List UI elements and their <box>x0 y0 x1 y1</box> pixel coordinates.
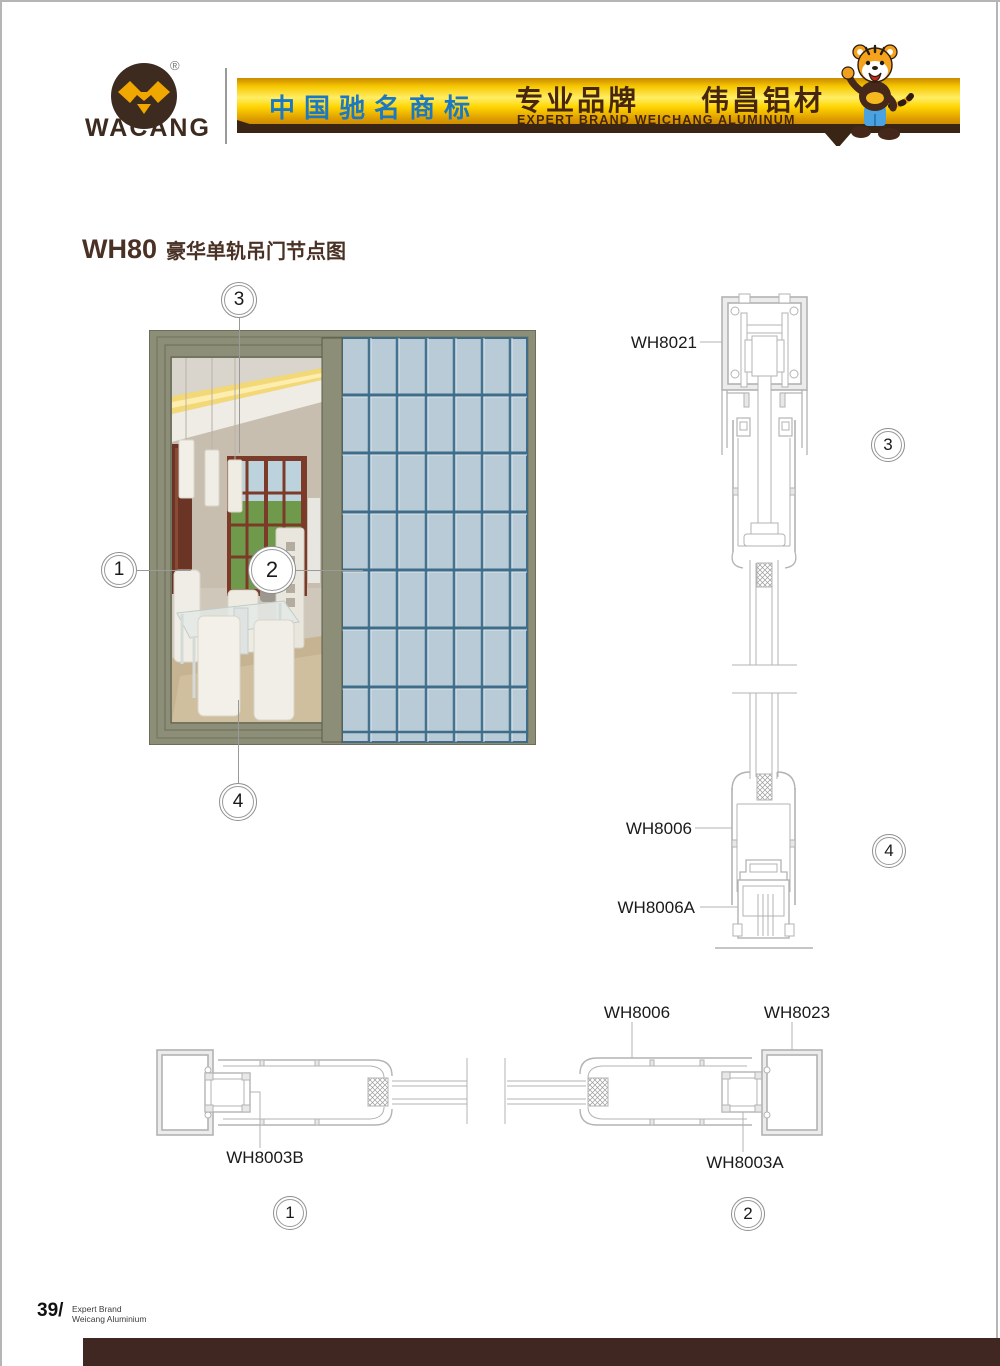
banner-slogan-cn: 中国驰名商标 <box>269 88 479 125</box>
page-title: WH80豪华单轨吊门节点图 <box>82 234 346 265</box>
page-left-border <box>0 0 2 1366</box>
page-number: 39/ <box>37 1300 63 1322</box>
catalog-page: ® WACANG 中国驰名商标 专业品牌 伟昌铝材 EXPERT BRAND W… <box>0 0 1000 1366</box>
label-wh8021: WH8021 <box>600 333 697 353</box>
label-wh8006a: WH8006A <box>595 898 695 918</box>
label-wh8006-vertical: WH8006 <box>600 819 692 839</box>
callout-2-number: 2 <box>266 557 278 583</box>
callout-4: 4 <box>219 783 257 821</box>
label-wh8023: WH8023 <box>757 1003 837 1023</box>
label-wh8006-horizontal: WH8006 <box>597 1003 677 1023</box>
tiger-mascot-icon <box>833 40 917 144</box>
header-divider <box>225 68 227 144</box>
registered-trademark: ® <box>170 58 180 73</box>
callout-2: 2 <box>248 546 296 594</box>
callout-3: 3 <box>221 282 257 318</box>
horizontal-section-drawing <box>130 1000 880 1170</box>
page-right-border <box>996 0 998 1338</box>
callout-3-number: 3 <box>234 289 245 311</box>
label-wh8003a: WH8003A <box>701 1153 789 1173</box>
grid-glass-panel <box>342 338 527 742</box>
detail-callout-2: 2 <box>731 1197 765 1231</box>
brand-name: WACANG <box>78 114 218 143</box>
footer-bar <box>83 1338 1000 1366</box>
leader-callout3 <box>239 318 240 453</box>
detail-callout-4-number: 4 <box>884 841 893 861</box>
detail-callout-1: 1 <box>273 1196 307 1230</box>
page-top-border <box>0 0 1000 2</box>
callout-1-number: 1 <box>114 559 125 581</box>
callout-4-number: 4 <box>233 791 244 813</box>
detail-callout-4: 4 <box>872 834 906 868</box>
detail-callout-2-number: 2 <box>743 1204 752 1224</box>
detail-callout-1-number: 1 <box>285 1203 294 1223</box>
interior-photo <box>172 358 322 722</box>
footer-line1: Expert Brand <box>72 1304 147 1314</box>
leader-callout1 <box>137 570 191 571</box>
vertical-section-drawing <box>600 280 960 980</box>
detail-callout-3: 3 <box>871 428 905 462</box>
footer-line2: Weicang Aluminium <box>72 1314 147 1324</box>
title-text: 豪华单轨吊门节点图 <box>166 241 346 263</box>
door-elevation-figure <box>149 330 536 745</box>
banner-brand-en: EXPERT BRAND WEICHANG ALUMINUM <box>517 113 796 127</box>
footer-brand-lines: Expert Brand Weicang Aluminium <box>72 1304 147 1324</box>
label-wh8003b: WH8003B <box>221 1148 309 1168</box>
leader-callout2 <box>296 570 363 571</box>
callout-1: 1 <box>101 552 137 588</box>
detail-callout-3-number: 3 <box>883 435 892 455</box>
leader-callout4 <box>238 700 239 783</box>
title-series-code: WH80 <box>82 234 157 264</box>
